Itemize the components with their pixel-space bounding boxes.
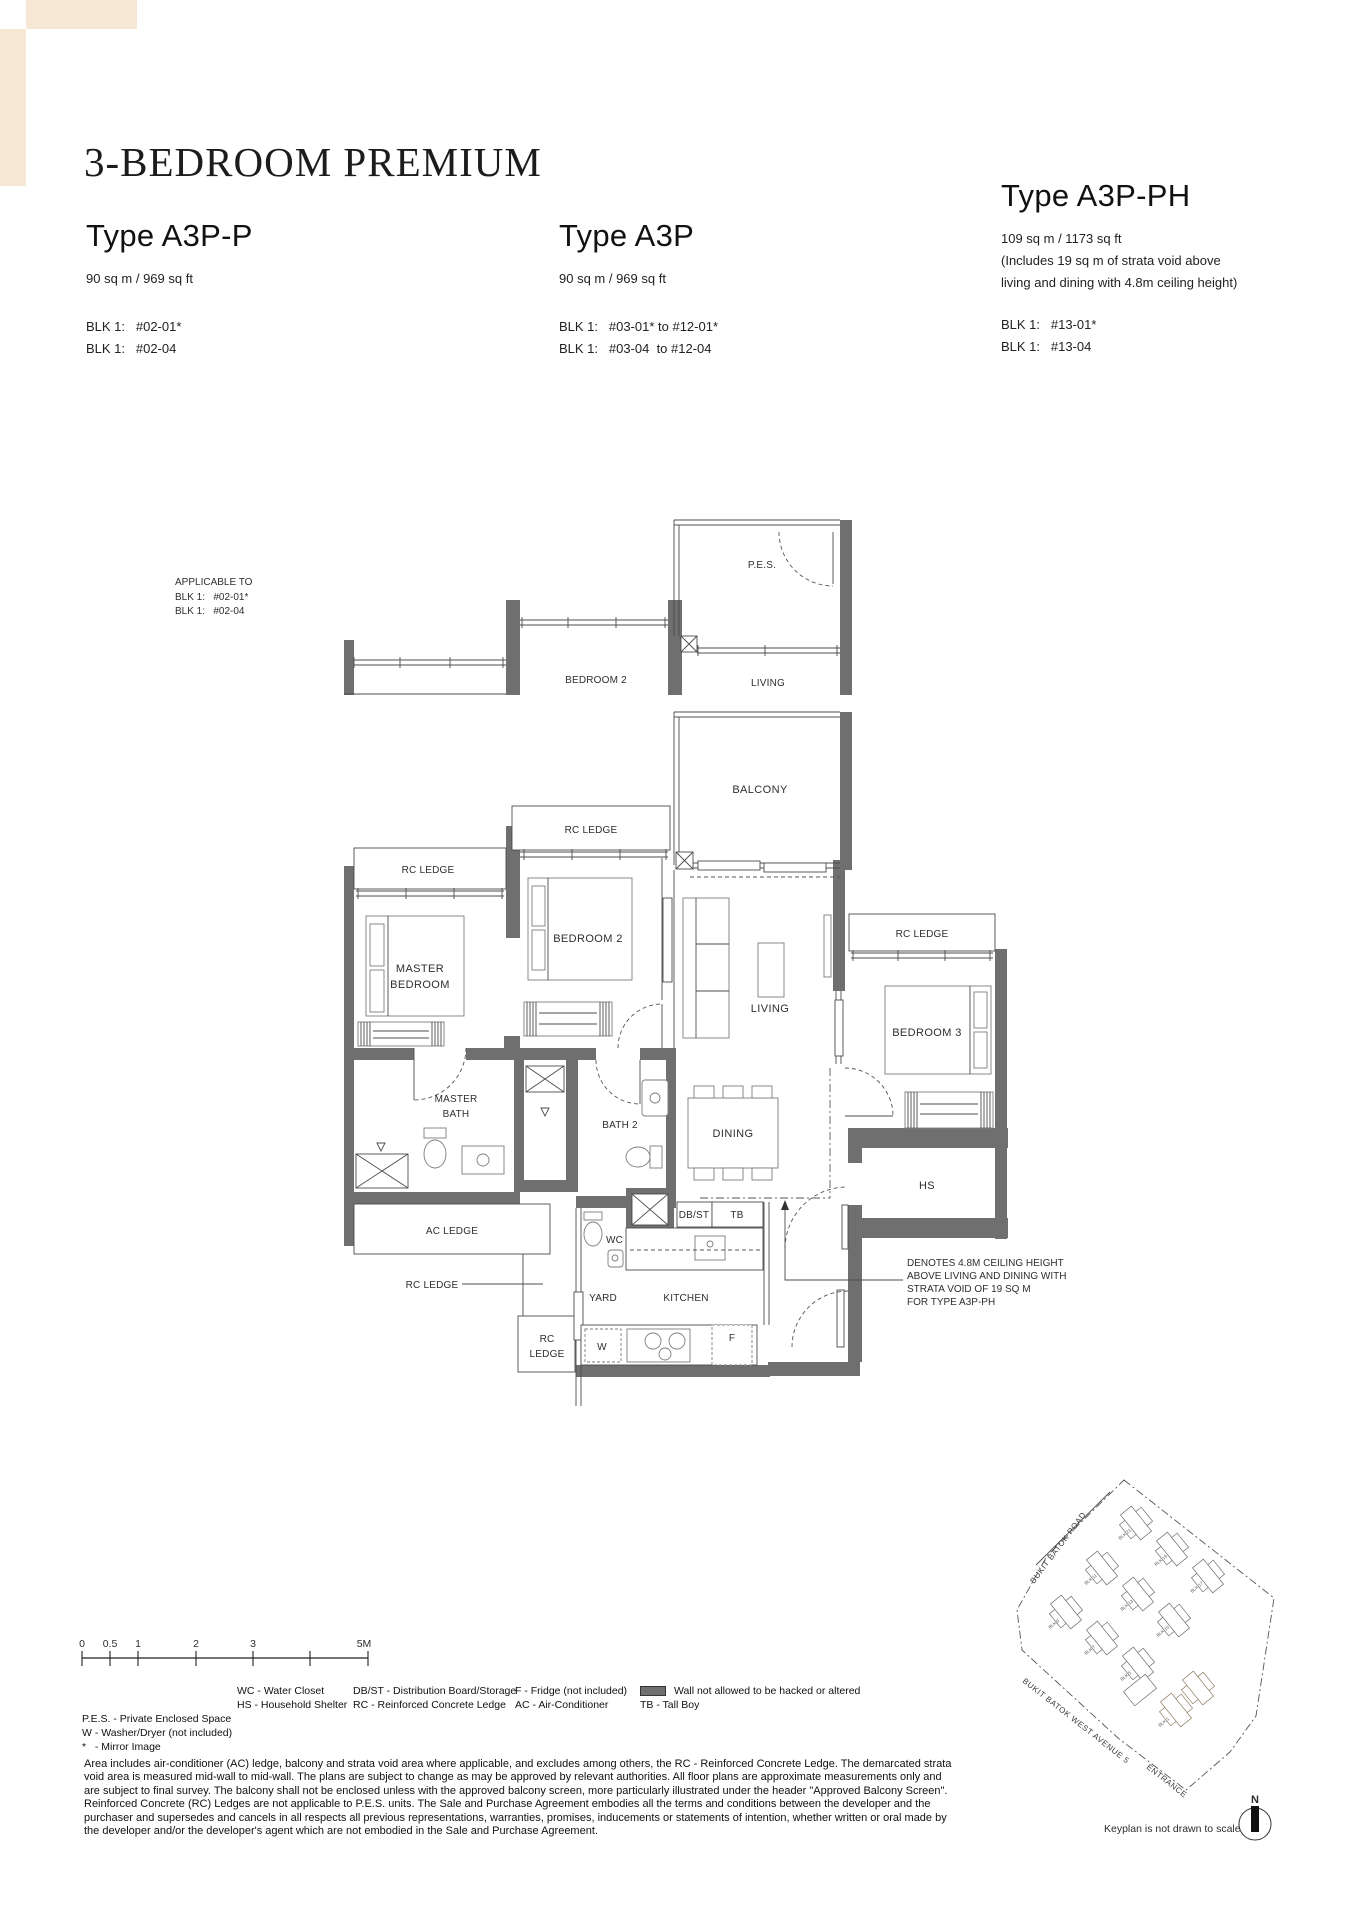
compass-icon: N <box>1239 1794 1271 1840</box>
denotes-note: DENOTES 4.8M CEILING HEIGHT ABOVE LIVING… <box>907 1258 1066 1308</box>
toilet-icon <box>650 1146 662 1168</box>
type-column-a3p-ph: Type A3P-PH 109 sq m / 1173 sq ft (Inclu… <box>1001 178 1237 358</box>
fridge-icon <box>712 1325 752 1365</box>
page-title: 3-BEDROOM PREMIUM <box>84 138 542 186</box>
svg-text:RC LEDGE: RC LEDGE <box>402 865 455 876</box>
svg-text:W: W <box>597 1342 607 1353</box>
legend-col-4: F - Fridge (not included)AC - Air-Condit… <box>515 1684 627 1712</box>
svg-text:MASTER: MASTER <box>396 963 444 975</box>
keyplan-caption: Keyplan is not drawn to scale <box>1104 1823 1241 1835</box>
svg-text:RC LEDGE: RC LEDGE <box>896 929 949 940</box>
svg-text:BEDROOM 3: BEDROOM 3 <box>892 1027 962 1039</box>
decor-beige-bar-left <box>0 29 26 186</box>
rc-ledge-leader-label: RC LEDGE <box>406 1280 459 1291</box>
legend-col-1: P.E.S. - Private Enclosed SpaceW - Washe… <box>82 1684 232 1768</box>
svg-text:MASTER: MASTER <box>435 1094 478 1105</box>
svg-text:WC: WC <box>606 1235 623 1246</box>
type-unit: BLK 1: #02-04 <box>86 338 253 360</box>
type-note: (Includes 19 sq m of strata void above <box>1001 250 1237 272</box>
rc-ledge-top: RC LEDGE <box>512 806 670 860</box>
sofa-icon <box>683 898 729 1038</box>
svg-text:YARD: YARD <box>589 1293 617 1304</box>
entrance-door <box>785 1187 848 1249</box>
living-room: LIVING <box>683 898 831 1038</box>
dbst-tb: DB/ST TB <box>677 1202 763 1227</box>
keyplan-buildings <box>1045 1502 1229 1731</box>
svg-text:LIVING: LIVING <box>751 1003 789 1015</box>
master-bedroom: MASTER BEDROOM <box>358 916 464 1046</box>
svg-text:TB: TB <box>730 1210 743 1221</box>
type-name: Type A3P-PH <box>1001 178 1237 214</box>
svg-text:KITCHEN: KITCHEN <box>663 1293 708 1304</box>
type-area: 109 sq m / 1173 sq ft <box>1001 228 1237 250</box>
svg-text:F: F <box>729 1333 735 1344</box>
rc-ledge-lower: RC LEDGE RC LEDGE <box>406 1254 575 1372</box>
type-note: living and dining with 4.8m ceiling heig… <box>1001 272 1237 294</box>
room-label-balcony: BALCONY <box>732 784 788 796</box>
wardrobe-icon <box>358 1022 444 1046</box>
svg-text:1: 1 <box>135 1638 141 1650</box>
rc-ledge-left: RC LEDGE <box>354 848 506 899</box>
applicable-note: APPLICABLE TO BLK 1: #02-01* BLK 1: #02-… <box>175 577 253 617</box>
road-label-bukit-batok-road: BUKIT BATOK ROAD <box>1028 1510 1088 1585</box>
room-label-pes: P.E.S. <box>748 560 776 571</box>
bath-2: BATH 2 <box>596 1060 668 1168</box>
type-name: Type A3P <box>559 218 718 254</box>
svg-text:BEDROOM 2: BEDROOM 2 <box>553 933 623 945</box>
type-name: Type A3P-P <box>86 218 253 254</box>
svg-text:0.5: 0.5 <box>103 1638 118 1650</box>
foyer-door <box>792 1290 848 1347</box>
svg-text:N: N <box>1251 1794 1259 1806</box>
svg-text:RC: RC <box>540 1334 555 1345</box>
type-area: 90 sq m / 969 sq ft <box>559 268 718 290</box>
svg-text:AC LEDGE: AC LEDGE <box>426 1226 478 1237</box>
svg-text:2: 2 <box>193 1638 199 1650</box>
type-area: 90 sq m / 969 sq ft <box>86 268 253 290</box>
room-label-living-strip: LIVING <box>751 678 785 689</box>
svg-text:DB/ST: DB/ST <box>679 1210 709 1221</box>
scale-bar: 0 0.5 1 2 3 5M <box>60 1635 480 1680</box>
svg-text:ABOVE LIVING AND DINING WITH: ABOVE LIVING AND DINING WITH <box>907 1271 1066 1282</box>
svg-text:RC LEDGE: RC LEDGE <box>565 825 618 836</box>
type-unit: BLK 1: #03-01* to #12-01* <box>559 316 718 338</box>
svg-text:BLK 1: #02-04: BLK 1: #02-04 <box>175 606 245 617</box>
pes-strip: BEDROOM 2 P.E.S. LIVING <box>344 520 852 695</box>
legend-col-2: WC - Water ClosetHS - Household Shelter <box>237 1684 347 1712</box>
coffee-table-icon <box>758 943 784 997</box>
legend-col-3: DB/ST - Distribution Board/StorageRC - R… <box>353 1684 516 1712</box>
legend-col-5: Wall not allowed to be hacked or altered… <box>640 1684 860 1712</box>
decor-beige-bar-top <box>26 0 137 29</box>
svg-text:BATH: BATH <box>443 1109 470 1120</box>
wardrobe-icon <box>905 1092 993 1128</box>
svg-text:BATH 2: BATH 2 <box>602 1120 638 1131</box>
svg-text:STRATA VOID OF 19 SQ M: STRATA VOID OF 19 SQ M <box>907 1284 1031 1295</box>
kitchen-shaft <box>632 1194 668 1225</box>
sink-icon <box>695 1236 725 1260</box>
toilet-icon <box>424 1128 446 1138</box>
svg-text:0: 0 <box>79 1638 85 1650</box>
ac-ledge: AC LEDGE <box>354 1204 550 1254</box>
bedroom-2: BEDROOM 2 <box>524 858 674 1048</box>
bedroom-3: BEDROOM 3 <box>835 986 993 1128</box>
wardrobe-icon <box>524 1002 612 1036</box>
svg-text:DENOTES 4.8M CEILING HEIGHT: DENOTES 4.8M CEILING HEIGHT <box>907 1258 1064 1269</box>
keyplan: BLK 21 BLK 19 BLK 17 BLK 11 BLK 13 BLK 1… <box>995 1465 1345 1875</box>
type-column-a3p-p: Type A3P-P 90 sq m / 969 sq ft BLK 1: #0… <box>86 218 253 360</box>
svg-text:BLK 1: #02-01*: BLK 1: #02-01* <box>175 592 248 603</box>
household-shelter: HS <box>919 1180 935 1192</box>
rc-ledge-right: RC LEDGE <box>849 914 995 961</box>
svg-text:5M: 5M <box>357 1638 372 1650</box>
type-unit: BLK 1: #13-01* <box>1001 314 1237 336</box>
svg-text:HS: HS <box>919 1180 935 1192</box>
brochure-page: { "header": { "title": "3-BEDROOM PREMIU… <box>0 0 1361 1920</box>
ac-shaft <box>526 1066 564 1116</box>
tv-console-icon <box>824 915 831 977</box>
svg-text:DINING: DINING <box>713 1128 754 1140</box>
svg-text:LEDGE: LEDGE <box>530 1349 565 1360</box>
dining-area: DINING <box>688 1086 778 1180</box>
type-unit: BLK 1: #02-01* <box>86 316 253 338</box>
svg-text:BEDROOM: BEDROOM <box>390 979 450 991</box>
floor-plan: APPLICABLE TO BLK 1: #02-01* BLK 1: #02-… <box>140 500 1140 1420</box>
road-label-bukit-batok-west-ave5: BUKIT BATOK WEST AVENUE 5 <box>1021 1676 1131 1765</box>
svg-text:3: 3 <box>250 1638 256 1650</box>
master-bath: MASTER BATH <box>356 1048 504 1188</box>
balcony: BALCONY <box>674 712 840 877</box>
wall-swatch-icon <box>640 1686 666 1696</box>
type-unit: BLK 1: #13-04 <box>1001 336 1237 358</box>
room-label-bedroom2-strip: BEDROOM 2 <box>565 675 627 686</box>
entrance-label: ENTRANCE <box>1145 1762 1189 1799</box>
type-unit: BLK 1: #03-04 to #12-04 <box>559 338 718 360</box>
svg-text:FOR TYPE A3P-PH: FOR TYPE A3P-PH <box>907 1297 995 1308</box>
svg-text:APPLICABLE TO: APPLICABLE TO <box>175 577 253 588</box>
toilet-icon <box>584 1212 602 1220</box>
disclaimer: Area includes air-conditioner (AC) ledge… <box>84 1758 1124 1838</box>
type-column-a3p: Type A3P 90 sq m / 969 sq ft BLK 1: #03-… <box>559 218 718 360</box>
